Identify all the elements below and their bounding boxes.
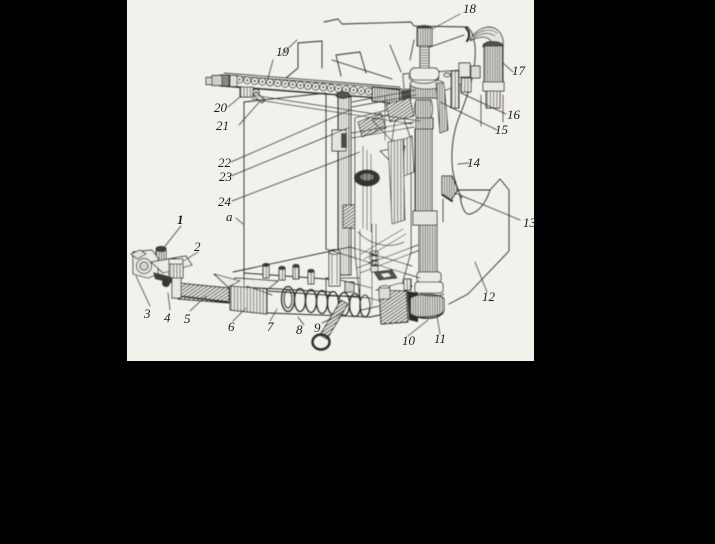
svg-text:12: 12 — [482, 289, 496, 304]
svg-text:1: 1 — [177, 212, 184, 227]
svg-text:16: 16 — [507, 107, 521, 122]
svg-text:8: 8 — [296, 322, 303, 337]
svg-text:13: 13 — [523, 215, 537, 230]
svg-text:9: 9 — [314, 320, 321, 335]
svg-text:24: 24 — [218, 194, 232, 209]
svg-text:5: 5 — [184, 311, 191, 326]
svg-text:19: 19 — [276, 44, 290, 59]
svg-text:18: 18 — [463, 1, 477, 16]
svg-text:4: 4 — [164, 310, 171, 325]
svg-text:3: 3 — [143, 306, 151, 321]
svg-text:7: 7 — [267, 319, 274, 334]
svg-text:a: a — [226, 209, 233, 224]
svg-text:2: 2 — [194, 239, 201, 254]
svg-text:10: 10 — [402, 333, 416, 348]
svg-text:22: 22 — [218, 155, 232, 170]
svg-text:14: 14 — [467, 155, 481, 170]
svg-text:17: 17 — [512, 63, 526, 78]
svg-text:6: 6 — [228, 319, 235, 334]
svg-text:15: 15 — [495, 122, 509, 137]
svg-text:23: 23 — [219, 169, 233, 184]
svg-text:20: 20 — [214, 100, 228, 115]
svg-text:11: 11 — [434, 331, 446, 346]
svg-text:21: 21 — [216, 118, 229, 133]
